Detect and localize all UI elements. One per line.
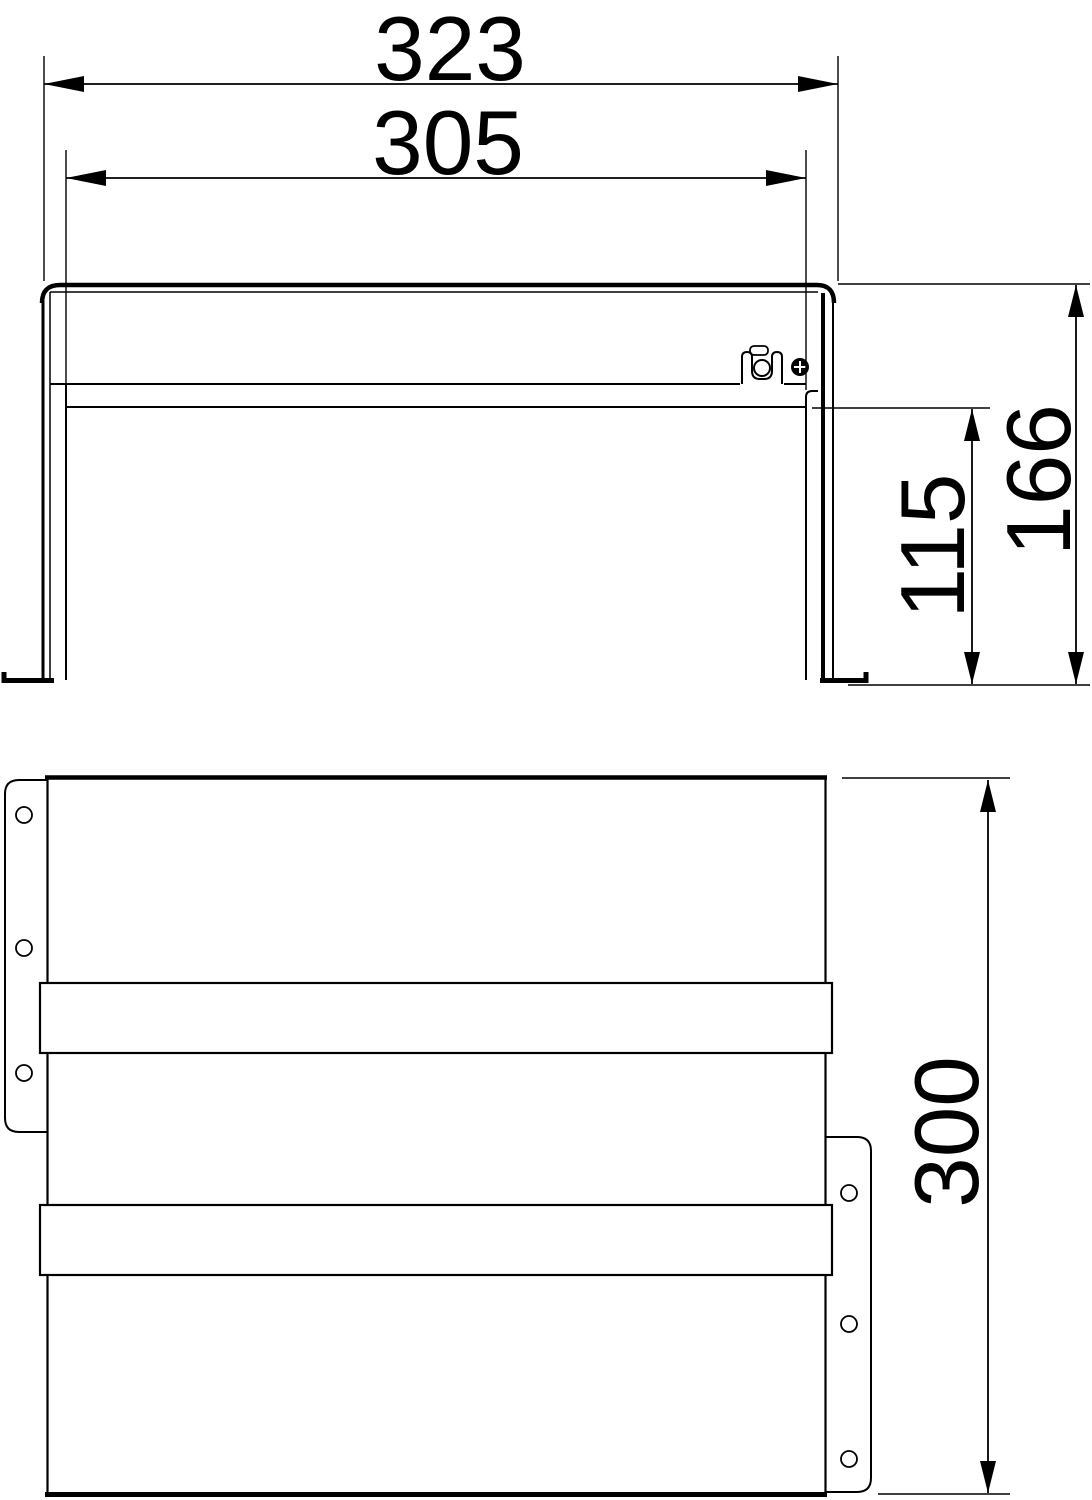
mounting-hole [16, 807, 32, 823]
latch-detail [742, 346, 809, 384]
arrowhead-up [980, 780, 996, 812]
left-foot [4, 672, 54, 681]
dim-overall-width-label: 323 [374, 0, 526, 100]
mounting-hole [841, 1316, 857, 1332]
body-outline [48, 778, 826, 1494]
arrowhead-right [798, 76, 838, 92]
crossbar-bottom [40, 1205, 832, 1275]
mounting-holes-right [841, 1185, 857, 1467]
arrowhead-down [980, 1461, 996, 1493]
latch-bracket [742, 352, 782, 384]
arrowhead-up [1068, 285, 1084, 317]
arrowhead-down [1068, 652, 1084, 684]
mounting-hole [16, 940, 32, 956]
dim-leg-height-label: 115 [883, 473, 984, 618]
mounting-hole [841, 1451, 857, 1467]
plan-view-dimensions: 300 [842, 778, 1010, 1494]
arrowhead-left [66, 170, 106, 186]
dim-inner-width: 305 [66, 93, 806, 194]
arrowhead-up [964, 409, 980, 441]
drawing-sheet: 323 305 166 115 [0, 0, 1092, 1500]
dim-overall-height-label: 166 [989, 404, 1090, 556]
rail-top-cap [42, 285, 834, 303]
arrowhead-left [44, 76, 84, 92]
crossbar-top [40, 983, 832, 1053]
technical-drawing: 323 305 166 115 [0, 0, 1092, 1500]
mounting-hole [841, 1185, 857, 1201]
front-view-dimensions: 323 305 166 115 [44, 0, 1090, 685]
mounting-holes-left [16, 807, 32, 1081]
right-foot [820, 672, 866, 681]
dim-depth-label: 300 [897, 1056, 998, 1208]
dim-depth: 300 [897, 780, 998, 1493]
arrowhead-right [766, 170, 806, 186]
latch-hole [754, 360, 770, 376]
dim-leg-height: 115 [883, 409, 984, 684]
dim-overall-width: 323 [44, 0, 838, 100]
mounting-hole [16, 1065, 32, 1081]
dim-inner-width-label: 305 [372, 93, 524, 194]
front-view [4, 285, 866, 681]
plan-view [5, 778, 871, 1495]
dim-overall-height: 166 [989, 285, 1090, 684]
arrowhead-down [964, 652, 980, 684]
right-leg-inner-line [806, 391, 818, 680]
latch-slot [750, 346, 768, 355]
